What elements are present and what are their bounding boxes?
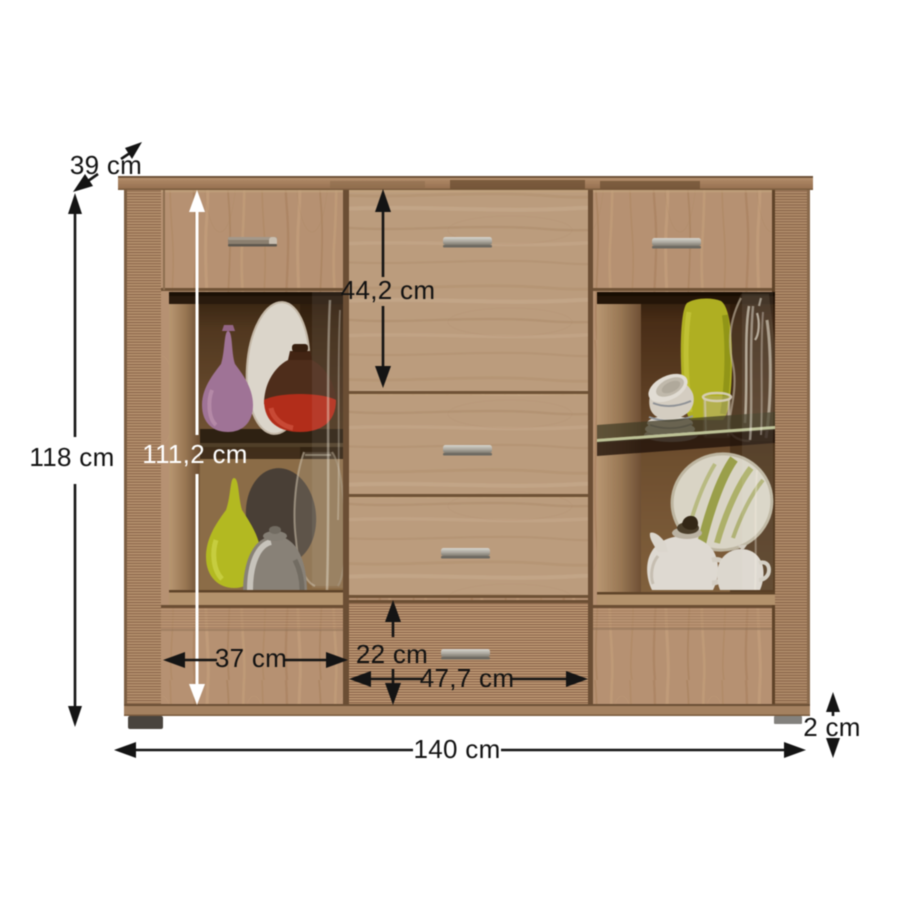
svg-text:44,2 cm: 44,2 cm [341,275,436,305]
svg-text:47,7 cm: 47,7 cm [420,663,515,693]
svg-text:22 cm: 22 cm [356,639,428,669]
svg-text:2 cm: 2 cm [803,712,861,742]
svg-text:39 cm: 39 cm [70,150,142,180]
svg-text:118 cm: 118 cm [29,442,114,472]
svg-text:37 cm: 37 cm [215,643,287,673]
svg-text:111,2 cm: 111,2 cm [142,439,248,469]
svg-text:140 cm: 140 cm [413,734,500,764]
